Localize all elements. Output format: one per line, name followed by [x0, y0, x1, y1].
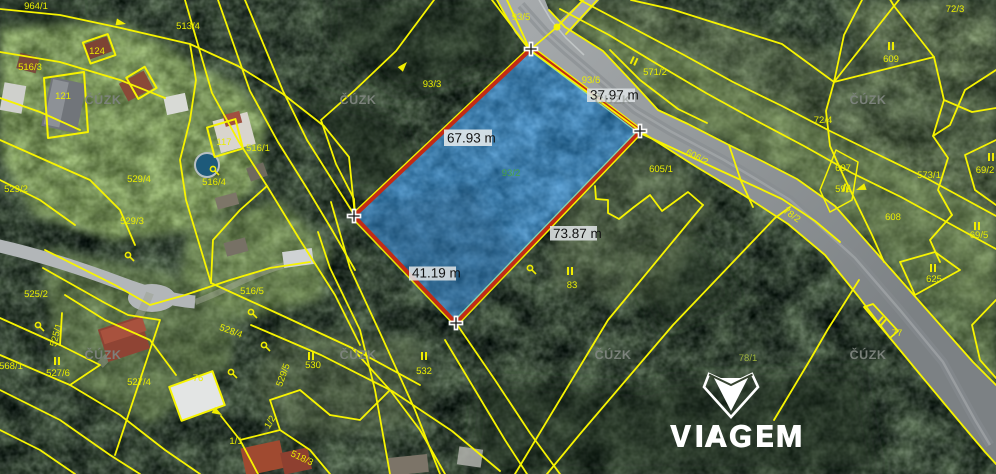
svg-text:525/2: 525/2 [24, 289, 48, 300]
svg-text:573/1: 573/1 [917, 170, 941, 181]
svg-text:93/2: 93/2 [502, 168, 521, 179]
svg-text:ČÚZK: ČÚZK [340, 347, 377, 362]
svg-text:69/2: 69/2 [976, 165, 995, 176]
svg-text:530: 530 [305, 360, 321, 371]
svg-text:ČÚZK: ČÚZK [595, 347, 632, 362]
svg-text:93/6: 93/6 [582, 75, 601, 86]
svg-text:529/4: 529/4 [127, 174, 151, 185]
svg-text:72/4: 72/4 [814, 115, 833, 126]
svg-text:83: 83 [567, 280, 578, 291]
svg-text:608: 608 [885, 212, 901, 223]
svg-text:72/3: 72/3 [946, 4, 965, 15]
svg-text:73.87 m: 73.87 m [553, 226, 602, 241]
svg-text:568/1: 568/1 [0, 361, 23, 372]
svg-text:ČÚZK: ČÚZK [85, 92, 122, 107]
svg-text:ČÚZK: ČÚZK [340, 92, 377, 107]
svg-text:532: 532 [416, 366, 432, 377]
svg-text:513/4: 513/4 [176, 21, 200, 32]
svg-text:41.19 m: 41.19 m [412, 266, 461, 281]
svg-text:ČÚZK: ČÚZK [850, 347, 887, 362]
svg-text:625: 625 [926, 274, 942, 285]
svg-text:117: 117 [216, 137, 231, 148]
svg-text:69/5: 69/5 [970, 230, 989, 241]
svg-text:516/4: 516/4 [202, 177, 226, 188]
svg-text:124: 124 [89, 46, 105, 57]
svg-text:67.93 m: 67.93 m [447, 131, 496, 146]
svg-text:607: 607 [835, 163, 851, 174]
svg-text:964/1: 964/1 [24, 1, 48, 12]
svg-text:571/2: 571/2 [643, 67, 667, 78]
svg-text:527/4: 527/4 [127, 377, 151, 388]
svg-text:ČÚZK: ČÚZK [85, 347, 122, 362]
svg-text:78/1: 78/1 [739, 353, 758, 364]
svg-text:93/3: 93/3 [423, 79, 442, 90]
svg-text:121: 121 [55, 91, 71, 102]
svg-text:516/1: 516/1 [246, 143, 270, 154]
svg-text:605/1: 605/1 [649, 164, 673, 175]
svg-text:1/1: 1/1 [229, 436, 242, 447]
svg-text:76: 76 [193, 373, 204, 384]
svg-text:93/5: 93/5 [512, 12, 531, 23]
svg-text:609: 609 [883, 54, 899, 65]
svg-text:516/5: 516/5 [240, 286, 264, 297]
svg-text:527/6: 527/6 [46, 368, 70, 379]
svg-text:529/3: 529/3 [120, 216, 144, 227]
svg-text:529/2: 529/2 [4, 184, 28, 195]
svg-text:ČÚZK: ČÚZK [850, 92, 887, 107]
svg-text:77: 77 [892, 328, 903, 339]
svg-text:ČÚZK: ČÚZK [595, 92, 632, 107]
svg-text:516/3: 516/3 [18, 62, 42, 73]
